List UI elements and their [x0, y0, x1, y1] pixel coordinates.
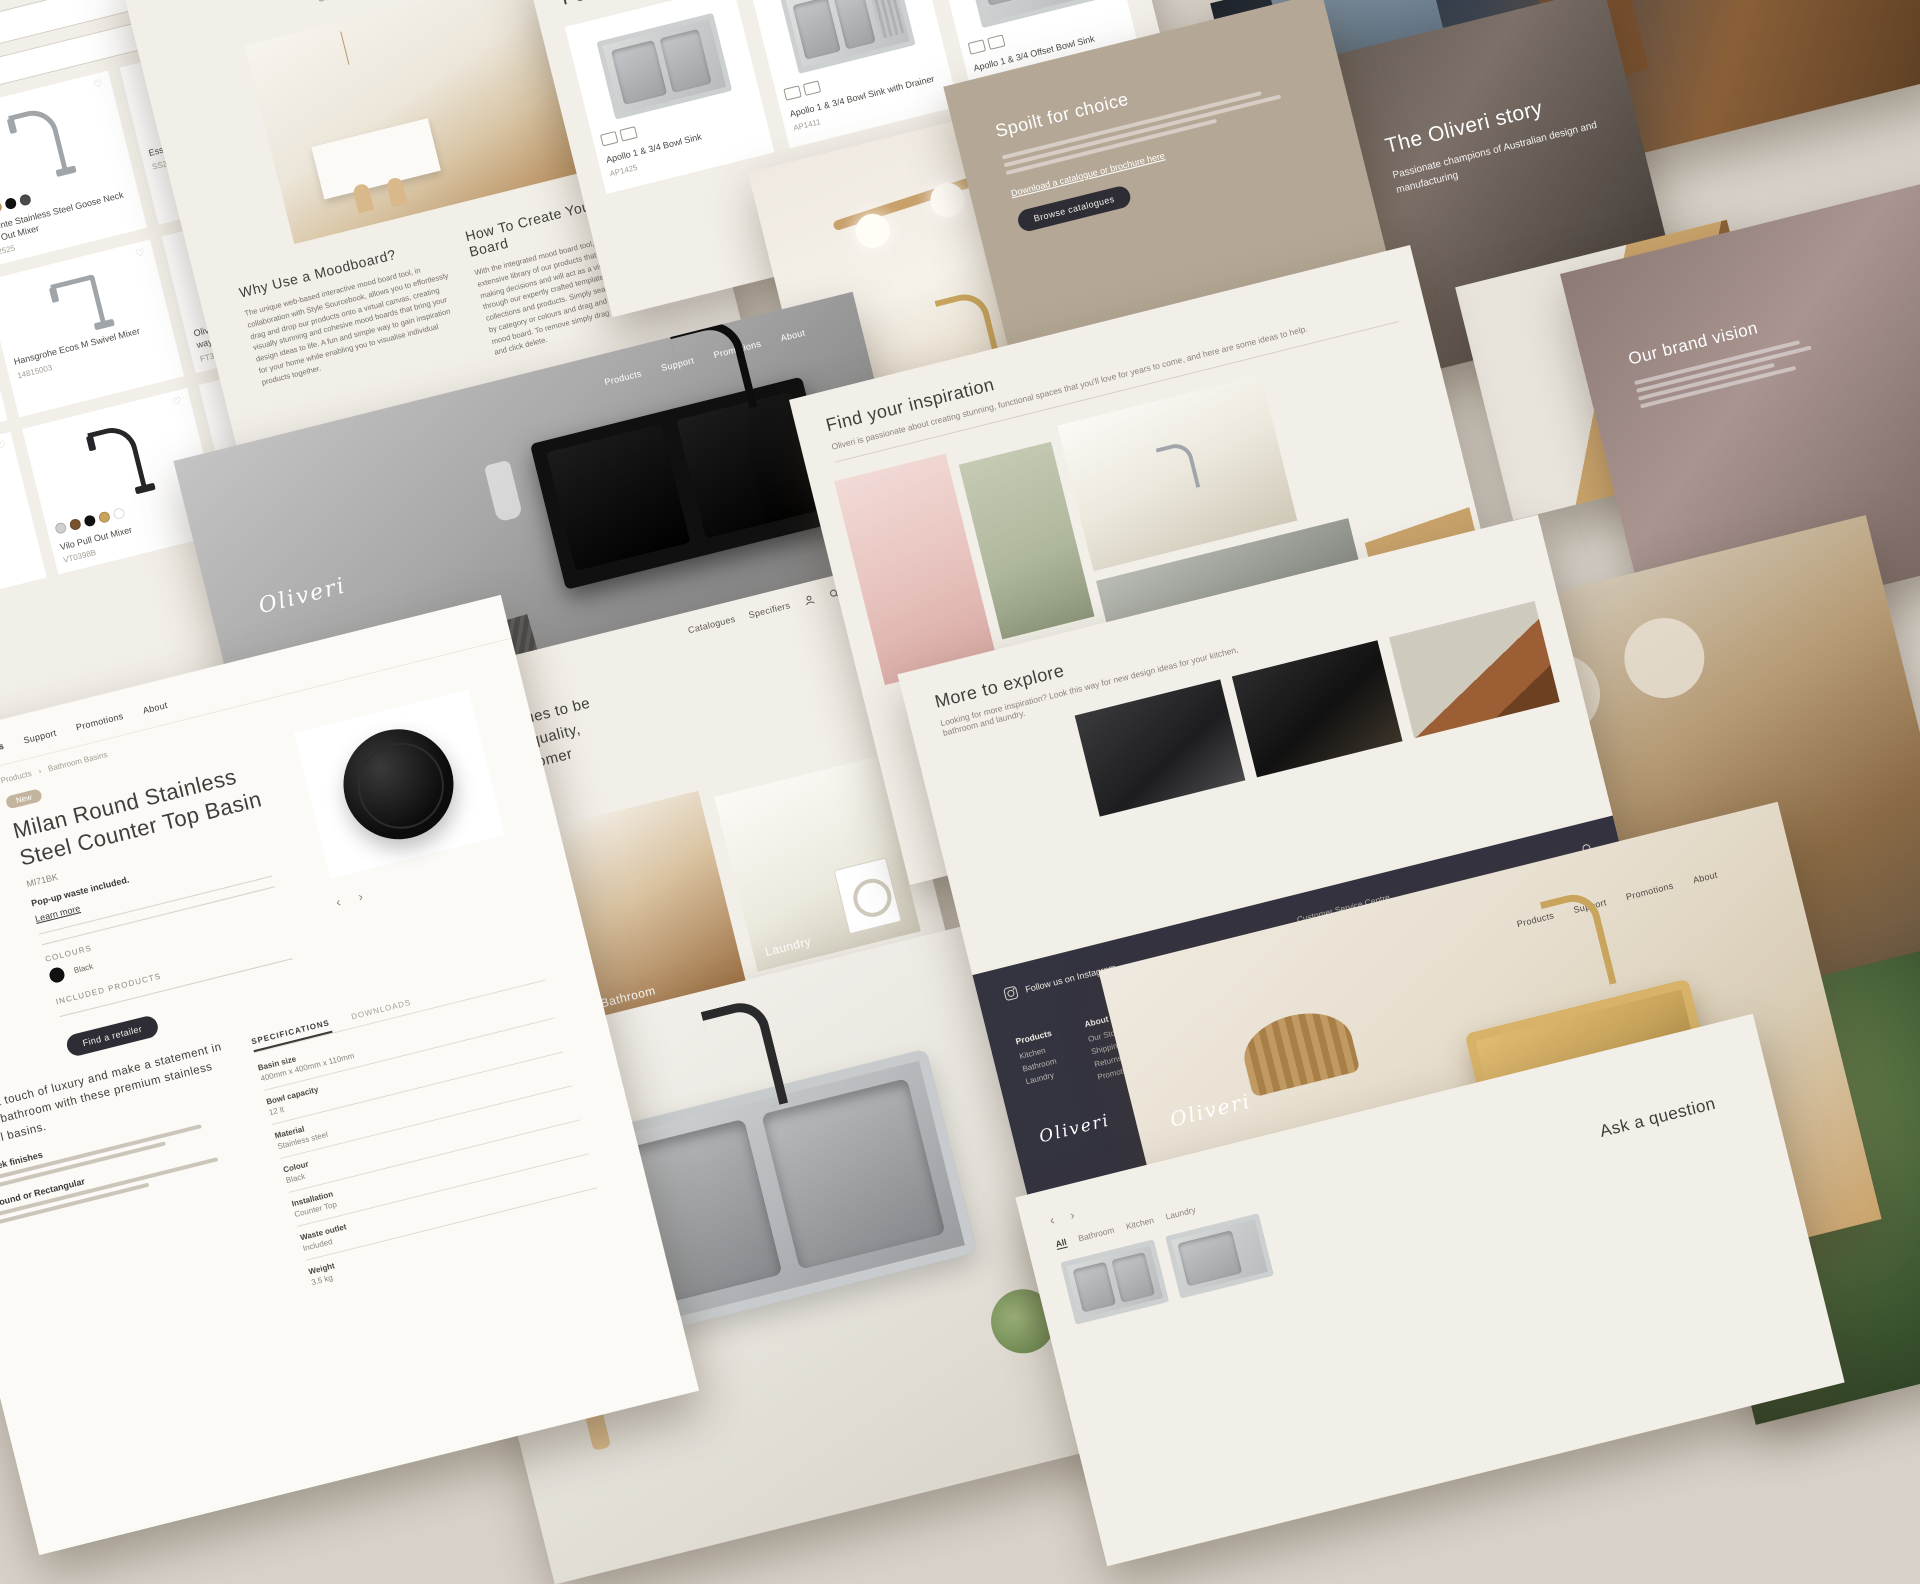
bowl-orientation-icon[interactable] [619, 126, 637, 142]
explore-photo-copper-sink[interactable] [1389, 601, 1560, 738]
sink-bowl [792, 0, 840, 60]
milan-text-line [0, 1182, 149, 1224]
drainer-ridges [869, 0, 905, 39]
wishlist-heart-icon[interactable]: ♡ [172, 395, 183, 408]
sink-thumbnail[interactable] [1165, 1213, 1274, 1298]
carousel-prev-icon[interactable]: ‹ [334, 894, 342, 910]
bowl-orientation-icon[interactable] [784, 85, 802, 101]
sink-bowl [1073, 1262, 1117, 1313]
colour-swatch [98, 510, 111, 523]
nav-about[interactable]: About [142, 700, 169, 716]
explore-photo-glass-cabinet[interactable] [1232, 640, 1403, 777]
sink-bowl [546, 424, 690, 571]
filter-bathroom[interactable]: Bathroom [1077, 1225, 1115, 1244]
nav-promotions[interactable]: Promotions [1625, 881, 1675, 902]
utility-catalogues[interactable]: Catalogues [687, 614, 737, 635]
new-badge: New [5, 788, 43, 809]
round-mirror [1616, 610, 1713, 707]
kitchen-island [311, 118, 440, 199]
filter-all[interactable]: All [1055, 1237, 1068, 1250]
featured-product-card[interactable]: Apollo 1 & 3/4 Bowl Sink AP1425 [565, 0, 775, 194]
sink-bowl [1111, 1252, 1155, 1303]
filter-kitchen[interactable]: Kitchen [1125, 1215, 1155, 1232]
breadcrumb-separator: › [37, 766, 42, 775]
nav-about[interactable]: About [1692, 870, 1719, 886]
nav-promotions[interactable]: Promotions [75, 711, 125, 732]
colour-swatch [4, 197, 17, 210]
wicker-basket [1237, 1003, 1361, 1098]
nav-products[interactable]: Products [0, 741, 5, 761]
product-sku: PT2010B [0, 563, 37, 609]
oliveri-footer-logo[interactable]: Oliveri [1037, 1111, 1112, 1148]
nav-about[interactable]: About [780, 328, 807, 344]
nav-support[interactable]: Support [22, 728, 57, 746]
tap-product-image [88, 422, 148, 500]
bowl-orientation-icon[interactable] [987, 35, 1005, 51]
oliveri-logo[interactable]: Oliveri [256, 573, 349, 619]
bowl-orientation-icon[interactable] [600, 131, 618, 147]
basin-rim [349, 734, 453, 838]
product-tile[interactable]: ♡ Hansgrohe Ecos M Swivel Mixer 14815003 [0, 240, 184, 417]
sink-product-image [963, 0, 1099, 28]
chrome-tap [1156, 440, 1201, 495]
ask-question-title: Ask a question [1598, 1094, 1718, 1142]
stool [386, 176, 408, 207]
washer-door [849, 875, 895, 921]
footer-col-products: Products Kitchen Bathroom Laundry [1015, 1028, 1067, 1103]
sink-thumbnail[interactable] [1060, 1239, 1169, 1324]
sink-bowl [659, 29, 711, 93]
sink-product-image [780, 0, 916, 74]
sink-bowl [1177, 1230, 1242, 1286]
featured-product-card[interactable]: Apollo 1 & 3/4 Bowl Sink with Drainer AP… [749, 0, 959, 148]
carousel-next-icon[interactable]: › [357, 889, 365, 905]
wishlist-heart-icon[interactable]: ♡ [135, 248, 146, 261]
carousel-next-icon[interactable]: › [1068, 1207, 1076, 1223]
colour-swatch-black[interactable] [48, 966, 66, 984]
wishlist-heart-icon[interactable]: ♡ [93, 78, 104, 91]
account-icon[interactable] [802, 593, 817, 608]
colour-swatch [54, 521, 67, 534]
bowl-orientation-icon[interactable] [967, 39, 985, 55]
carousel-prev-icon[interactable]: ‹ [1048, 1212, 1056, 1228]
tap-product-image [8, 105, 68, 183]
explore-photo-dark-kitchen[interactable] [1075, 679, 1246, 816]
black-round-basin [332, 718, 465, 851]
vision-text-line [1638, 363, 1775, 401]
colour-name: Black [73, 962, 94, 975]
instagram-icon[interactable] [1002, 985, 1019, 1002]
sink-bowl [611, 40, 667, 105]
filter-laundry[interactable]: Laundry [1164, 1204, 1196, 1221]
nav-products[interactable]: Products [603, 368, 642, 387]
sink-bowl [761, 1078, 945, 1270]
colour-swatch [84, 514, 97, 527]
utility-specifiers[interactable]: Specifiers [748, 600, 792, 620]
product-tile[interactable]: ♡ Essente Stainless Steel Goose Neck Pul… [0, 71, 147, 270]
bowl-orientation-icon[interactable] [803, 80, 821, 96]
sink-bowl [833, 0, 876, 50]
footer-col-title: Products [1015, 1028, 1053, 1047]
water-carafe [484, 460, 523, 523]
black-mixer-tap [701, 997, 788, 1118]
washing-machine [834, 857, 902, 934]
basin-product-photo [294, 689, 505, 878]
sink-product-image [596, 13, 732, 120]
colour-swatch [0, 201, 3, 214]
colour-swatch [69, 518, 82, 531]
oliveri-logo: Oliveri [1168, 1088, 1254, 1131]
pendant-light [340, 31, 349, 64]
colour-swatch [113, 507, 126, 520]
wishlist-heart-icon[interactable]: ♡ [0, 439, 7, 452]
tap-product-image [51, 274, 107, 336]
sink-bowl [978, 0, 1032, 6]
laundry-label: Laundry [764, 934, 813, 959]
colour-swatch [19, 193, 32, 206]
